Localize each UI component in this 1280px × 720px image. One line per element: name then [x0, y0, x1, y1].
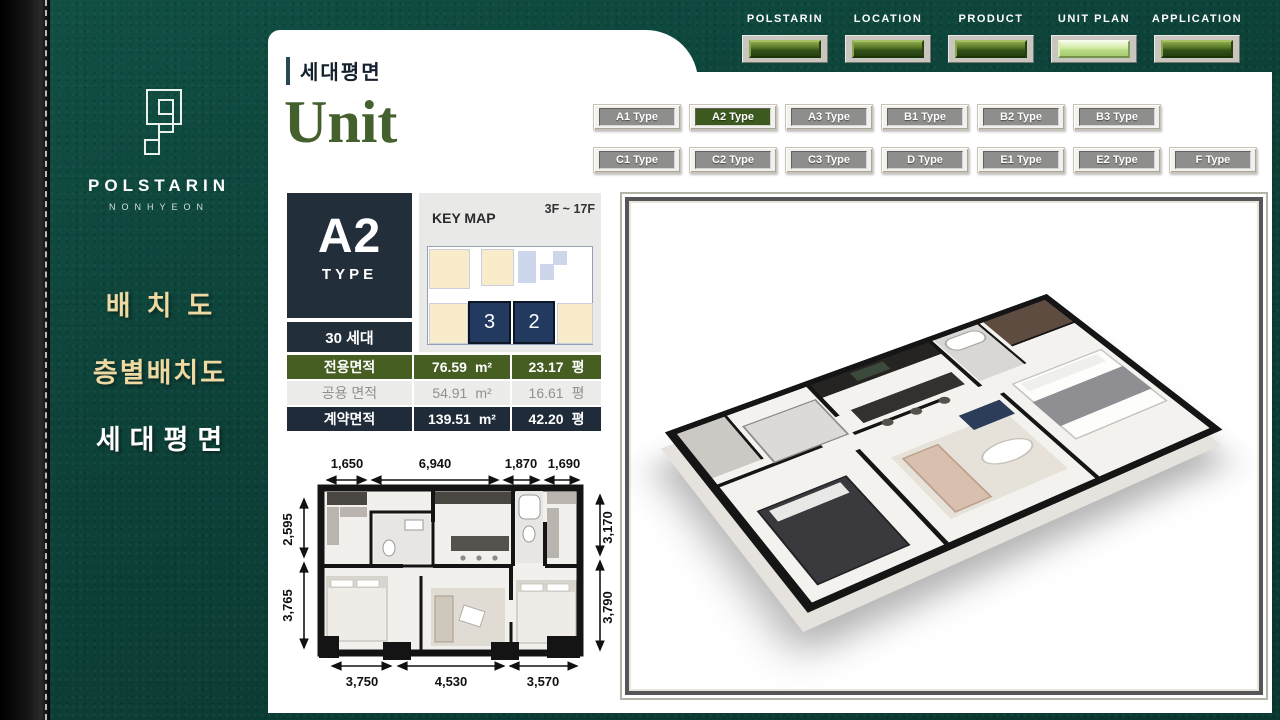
- nav-button-face: [852, 40, 924, 58]
- type-button-e1[interactable]: E1 Type: [977, 147, 1065, 173]
- type-button-label: A2 Type: [695, 108, 771, 126]
- dim-right-1: 3,170: [600, 511, 615, 544]
- type-button-label: C3 Type: [791, 151, 867, 169]
- type-button-c2[interactable]: C2 Type: [689, 147, 777, 173]
- leather-edge: [0, 0, 50, 720]
- households-bar: 30 세대: [287, 322, 412, 352]
- top-navigation: POLSTARIN LOCATION PRODUCT UNIT PLAN APP…: [742, 5, 1240, 63]
- nav-item-product: PRODUCT: [948, 5, 1034, 63]
- nav-button-face: [1058, 40, 1130, 58]
- dim-left-2: 3,765: [280, 589, 295, 622]
- nav-button-product[interactable]: [948, 35, 1034, 63]
- dim-left-1: 2,595: [280, 513, 295, 546]
- nav-label: APPLICATION: [1154, 5, 1240, 35]
- row-label: 전용면적: [287, 355, 412, 379]
- keymap-title: KEY MAP: [432, 210, 496, 226]
- dim-top-3: 1,870: [505, 456, 538, 471]
- sidebar-item-floor-layout[interactable]: 층별배치도: [50, 351, 270, 390]
- pyeong-value: 42.20: [529, 411, 564, 427]
- floor-plan-drawing: [283, 450, 618, 710]
- floor-range: 3F ~ 17F: [545, 202, 595, 216]
- nav-label: PRODUCT: [948, 5, 1034, 35]
- dim-bottom-1: 3,750: [346, 674, 379, 689]
- type-button-a1[interactable]: A1 Type: [593, 104, 681, 130]
- type-button-a3[interactable]: A3 Type: [785, 104, 873, 130]
- unit-3d-render: [629, 201, 1259, 691]
- type-button-label: E1 Type: [983, 151, 1059, 169]
- keymap-block: [557, 303, 593, 344]
- row-label: 계약면적: [287, 407, 412, 431]
- nav-item-application: APPLICATION: [1154, 5, 1240, 63]
- type-button-e2[interactable]: E2 Type: [1073, 147, 1161, 173]
- keymap-block: [553, 251, 567, 265]
- unit-type-word: TYPE: [287, 266, 412, 283]
- keymap-block: [429, 303, 468, 344]
- nav-button-face: [1161, 40, 1233, 58]
- plan-walls: [319, 488, 580, 660]
- type-button-label: B3 Type: [1079, 108, 1155, 126]
- iso-apartment: [665, 294, 1223, 613]
- nav-item-unit-plan: UNIT PLAN: [1051, 5, 1137, 63]
- type-button-b3[interactable]: B3 Type: [1073, 104, 1161, 130]
- sqm-value: 76.59: [432, 359, 467, 375]
- nav-button-unit-plan[interactable]: [1051, 35, 1137, 63]
- keymap-unit-3: 3: [468, 301, 511, 344]
- type-button-row-2: C1 Type C2 Type C3 Type D Type E1 Type E…: [593, 147, 1257, 173]
- nav-button-location[interactable]: [845, 35, 931, 63]
- type-button-label: A1 Type: [599, 108, 675, 126]
- row-label: 공용 면적: [287, 381, 412, 405]
- right-edge: [1272, 0, 1280, 720]
- sidebar-item-unit-plan[interactable]: 세대평면: [50, 418, 277, 457]
- sqm-value: 54.91: [432, 385, 467, 401]
- brand-subname: NONHYEON: [50, 202, 268, 212]
- unit-type-code: A2: [287, 209, 412, 264]
- nav-label: UNIT PLAN: [1051, 5, 1137, 35]
- polstarin-logo-icon: [129, 86, 189, 168]
- area-table: 전용면적 76.59m² 23.17평 공용 면적 54.91m² 16.61평…: [287, 355, 601, 433]
- breadcrumb: 세대평면: [286, 56, 382, 85]
- sidebar-menu: 배치도 층별배치도 세대평면: [50, 284, 268, 457]
- type-button-label: D Type: [887, 151, 963, 169]
- floor-plan-2d: 1,650 6,940 1,870 1,690 2,595 3,765 3,17…: [283, 450, 618, 710]
- page-title: Unit: [284, 88, 397, 157]
- nav-item-location: LOCATION: [845, 5, 931, 63]
- dim-bottom-3: 3,570: [527, 674, 560, 689]
- nav-button-polstarin[interactable]: [742, 35, 828, 63]
- sidebar: POLSTARIN NONHYEON 배치도 층별배치도 세대평면: [50, 0, 268, 720]
- type-button-label: B2 Type: [983, 108, 1059, 126]
- breadcrumb-bar: [286, 57, 290, 85]
- sqm-unit: m²: [475, 385, 491, 401]
- table-row-common-area: 공용 면적 54.91m² 16.61평: [287, 381, 601, 405]
- sqm-unit: m²: [475, 359, 492, 375]
- nav-button-face: [749, 40, 821, 58]
- type-button-label: A3 Type: [791, 108, 867, 126]
- nav-item-polstarin: POLSTARIN: [742, 5, 828, 63]
- dim-right-2: 3,790: [600, 591, 615, 624]
- type-button-label: E2 Type: [1079, 151, 1155, 169]
- type-button-c3[interactable]: C3 Type: [785, 147, 873, 173]
- keymap-block: [481, 249, 514, 286]
- dim-top-4: 1,690: [548, 456, 581, 471]
- type-button-label: C1 Type: [599, 151, 675, 169]
- nav-button-application[interactable]: [1154, 35, 1240, 63]
- nav-label: LOCATION: [845, 5, 931, 35]
- breadcrumb-text: 세대평면: [300, 56, 382, 85]
- type-button-b1[interactable]: B1 Type: [881, 104, 969, 130]
- sqm-value: 139.51: [428, 411, 471, 427]
- keymap-diagram: 3 2: [427, 246, 593, 345]
- unit-type-card: A2 TYPE: [287, 193, 412, 318]
- type-button-f[interactable]: F Type: [1169, 147, 1257, 173]
- render-frame-inner: [625, 197, 1263, 695]
- dim-bottom-2: 4,530: [435, 674, 468, 689]
- pyeong-value: 16.61: [529, 385, 564, 401]
- type-button-label: B1 Type: [887, 108, 963, 126]
- type-button-label: F Type: [1175, 151, 1251, 169]
- type-button-row-1: A1 Type A2 Type A3 Type B1 Type B2 Type …: [593, 104, 1161, 130]
- pyeong-unit: 평: [572, 357, 585, 377]
- dim-top-2: 6,940: [419, 456, 452, 471]
- type-button-a2[interactable]: A2 Type: [689, 104, 777, 130]
- nav-label: POLSTARIN: [742, 5, 828, 35]
- type-button-c1[interactable]: C1 Type: [593, 147, 681, 173]
- sidebar-item-baechido[interactable]: 배치도: [50, 284, 284, 323]
- table-row-contract-area: 계약면적 139.51m² 42.20평: [287, 407, 601, 431]
- render-frame: [620, 192, 1268, 700]
- keymap-block: [540, 264, 554, 280]
- type-button-d[interactable]: D Type: [881, 147, 969, 173]
- sqm-unit: m²: [479, 411, 496, 427]
- nav-button-face: [955, 40, 1027, 58]
- stitch-line: [45, 0, 47, 720]
- keymap-block: [518, 251, 536, 283]
- type-button-label: C2 Type: [695, 151, 771, 169]
- type-button-b2[interactable]: B2 Type: [977, 104, 1065, 130]
- pyeong-value: 23.17: [529, 359, 564, 375]
- table-row-exclusive-area: 전용면적 76.59m² 23.17평: [287, 355, 601, 379]
- stool: [936, 396, 952, 406]
- keymap-block: [429, 249, 470, 289]
- keymap-unit-2: 2: [513, 301, 555, 344]
- keymap-panel: KEY MAP 3F ~ 17F 3 2: [419, 193, 601, 352]
- brand-name: POLSTARIN: [50, 176, 268, 196]
- pyeong-unit: 평: [572, 383, 585, 403]
- pyeong-unit: 평: [572, 409, 585, 429]
- dim-top-1: 1,650: [331, 456, 364, 471]
